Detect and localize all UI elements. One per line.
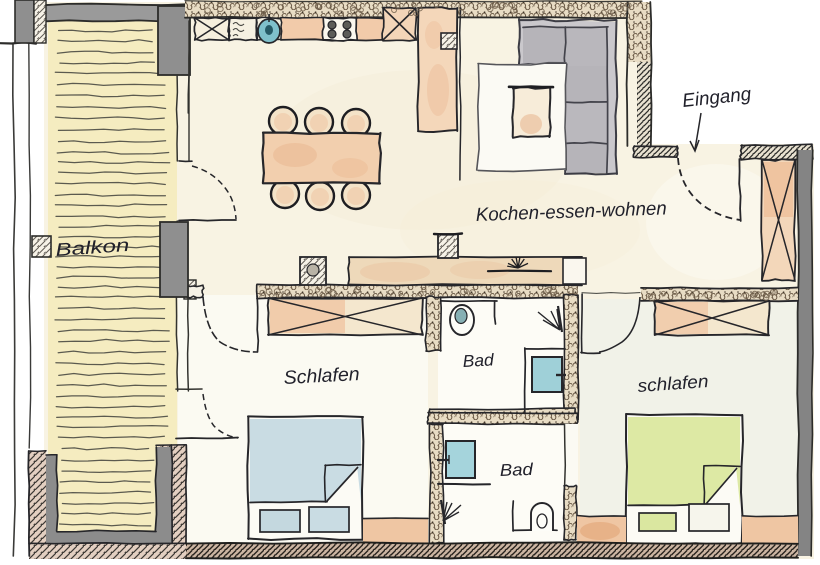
- svg-text:Bad: Bad: [499, 460, 533, 480]
- svg-text:Schlafen: Schlafen: [283, 364, 360, 389]
- svg-text:Bad: Bad: [462, 350, 495, 371]
